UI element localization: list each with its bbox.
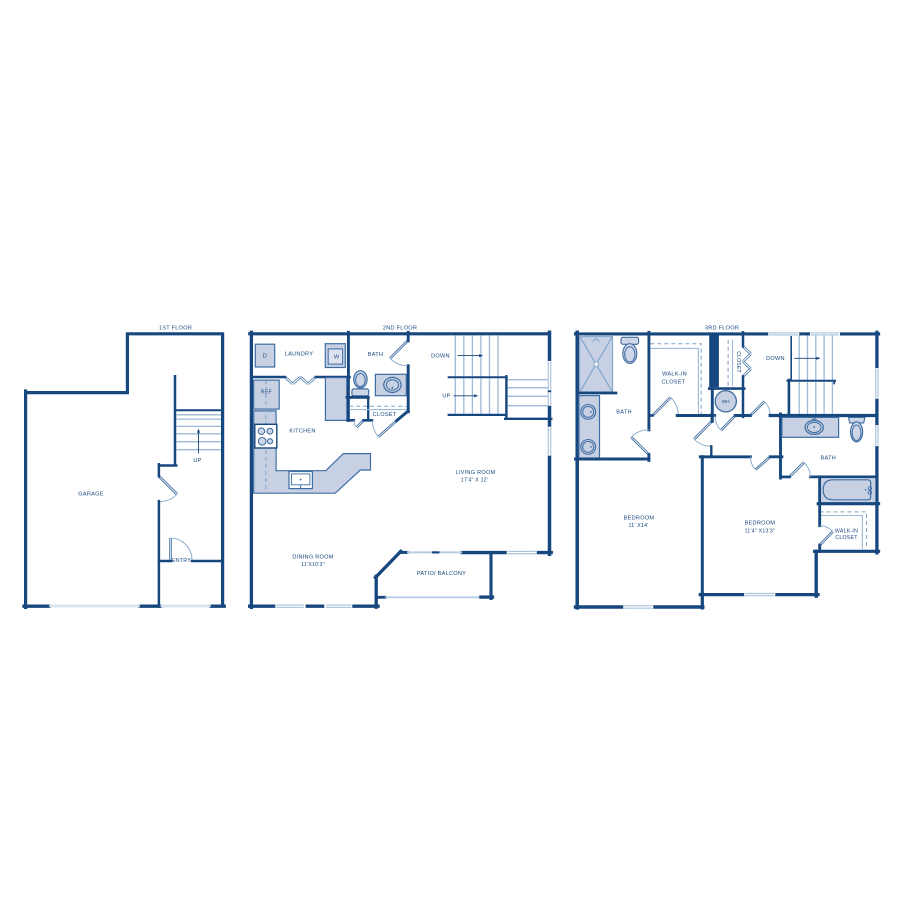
svg-text:WALK-IN: WALK-IN — [835, 528, 858, 534]
svg-text:2ND FLOOR: 2ND FLOOR — [383, 326, 417, 332]
svg-text:W: W — [334, 355, 340, 361]
svg-text:3RD FLOOR: 3RD FLOOR — [705, 326, 739, 332]
svg-text:KITCHEN: KITCHEN — [289, 428, 315, 434]
svg-text:DINING ROOM: DINING ROOM — [292, 554, 333, 560]
svg-text:1ST FLOOR: 1ST FLOOR — [159, 326, 192, 332]
svg-text:CLOSET: CLOSET — [835, 535, 858, 541]
svg-text:CLOSET: CLOSET — [662, 379, 686, 385]
svg-text:ENTRY: ENTRY — [172, 558, 191, 564]
svg-text:11'X10'3": 11'X10'3" — [301, 562, 325, 568]
svg-text:BEDROOM: BEDROOM — [624, 516, 655, 522]
svg-text:11'4" X13'3": 11'4" X13'3" — [745, 529, 776, 535]
svg-text:PATIO/ BALCONY: PATIO/ BALCONY — [417, 571, 466, 577]
svg-text:CLOSET: CLOSET — [373, 412, 397, 418]
svg-text:WALK-IN: WALK-IN — [662, 372, 687, 378]
svg-text:CLOSET: CLOSET — [735, 351, 741, 373]
svg-text:BATH: BATH — [616, 409, 632, 415]
svg-text:BATH: BATH — [821, 455, 837, 461]
svg-text:UP: UP — [442, 394, 450, 400]
svg-text:GARAGE: GARAGE — [78, 492, 103, 498]
svg-text:11' X14': 11' X14' — [628, 523, 648, 529]
svg-text:D: D — [263, 354, 267, 360]
svg-text:17'4" X 12': 17'4" X 12' — [461, 478, 488, 484]
svg-text:BATH: BATH — [368, 352, 384, 358]
svg-text:DOWN: DOWN — [766, 356, 785, 362]
svg-text:WH: WH — [722, 399, 730, 404]
svg-text:DOWN: DOWN — [431, 354, 450, 360]
svg-text:UP: UP — [193, 458, 201, 464]
svg-text:LAUNDRY: LAUNDRY — [285, 351, 313, 357]
svg-text:LIVING ROOM: LIVING ROOM — [455, 470, 495, 476]
svg-text:BEDROOM: BEDROOM — [745, 521, 776, 527]
